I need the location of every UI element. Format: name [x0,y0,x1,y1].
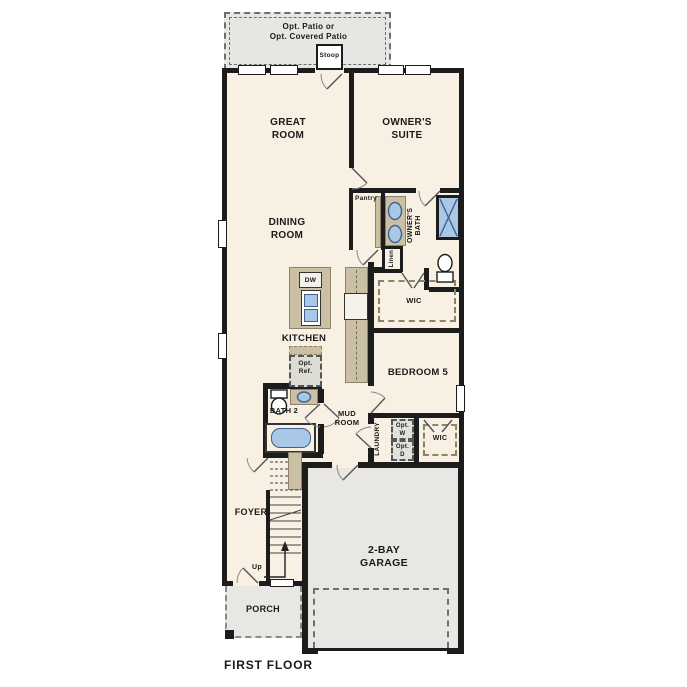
opt-dryer-label: Opt. D [393,444,412,459]
bathtub-basin [271,428,311,448]
floor-plan: Opt. Patio or Opt. Covered Patio Stoop 2… [0,0,687,687]
opt-patio-area: Opt. Patio or Opt. Covered Patio [224,12,391,70]
opt-ref: Opt. Ref. [289,355,322,387]
window-suite-1 [378,65,404,75]
sink-basin-bottom [304,309,318,322]
shower [436,195,461,240]
owners-wic-label: WIC [384,296,444,305]
laundry-label-box: LAUNDRY [370,416,386,462]
kitchen-counter [345,267,368,383]
opt-dryer: Opt. D [391,440,414,461]
wall-laundry-wic2 [414,418,419,462]
garage-door-dashed [313,588,449,648]
wall-bath2-right-lower [318,424,324,454]
opt-ref-label: Opt. Ref. [291,360,320,376]
owners-suite-label: OWNER'S SUITE [367,117,447,142]
bathtub [265,423,316,453]
linen-label: Linen [389,250,396,268]
bath2-vanity [290,389,318,405]
linen-label-box: Linen [382,246,403,272]
window-greatroom-2 [270,65,298,75]
mud-room-label: MUD ROOM [322,409,372,428]
owners-bath-vanity [385,196,406,246]
stoop-area: Stoop [316,44,343,70]
front-door-gap [233,580,259,586]
stoop-label: Stoop [318,52,341,60]
kitchen-sink [301,290,321,326]
owners-bath-label: OWNER'S BATH [408,207,425,242]
great-room-label: GREAT ROOM [248,117,328,142]
first-floor-title: FIRST FLOOR [224,658,364,673]
wall-stair-left [266,490,270,582]
window-greatroom-1 [238,65,266,75]
porch-post [225,630,234,639]
opt-counter [289,346,322,355]
up-label: Up [248,564,266,573]
dining-room-label: DINING ROOM [247,217,327,242]
opt-washer-label: Opt. W [393,423,412,438]
foyer-label: FOYER [223,507,279,518]
window-bedroom5 [456,385,465,412]
garage-label: 2-BAY GARAGE [344,544,424,570]
pantry-shelf [375,196,381,248]
counter-centerline [356,270,357,380]
understair-closet [288,452,302,490]
bath2-label: BATH 2 [262,406,306,415]
garage-entry-gap [332,462,358,468]
window-left-2 [218,333,227,359]
laundry-label: LAUNDRY [374,422,382,456]
window-suite-2 [405,65,431,75]
kitchen-label: KITCHEN [268,333,340,345]
porch-area: PORCH [225,586,302,638]
opt-washer: Opt. W [391,419,414,440]
window-foyer [270,579,294,587]
window-left-1 [218,220,227,248]
wall-greatroom-suite [349,73,354,168]
wall-bath2-right-upper [318,389,324,403]
sink-basin-top [304,294,318,307]
wall-wic-bottom [368,328,461,333]
garage-bottom-thin-wall [318,651,447,654]
owners-bath-label-box: OWNER'S BATH [404,194,428,256]
stove [344,293,368,320]
pantry-label: Pantry [351,195,381,203]
wic2-label: WIC [424,435,456,444]
dishwasher-label: DW [300,277,321,285]
patio-label: Opt. Patio or Opt. Covered Patio [226,22,391,42]
bedroom5-label: BEDROOM 5 [377,367,459,379]
wall-suite-bottom-right [440,188,461,193]
porch-label: PORCH [235,604,291,615]
dishwasher: DW [299,272,322,288]
